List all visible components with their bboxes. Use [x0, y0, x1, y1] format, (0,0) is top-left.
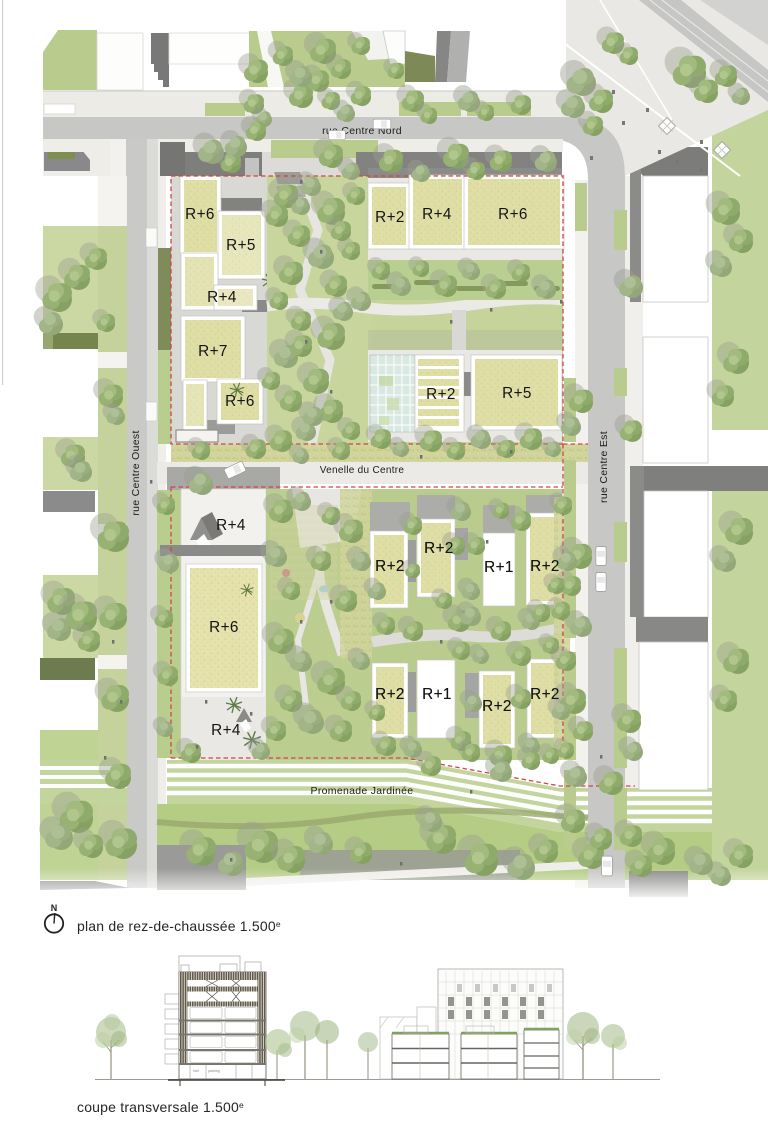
- svg-text:R+5: R+5: [502, 385, 532, 402]
- svg-text:R+6: R+6: [185, 206, 215, 223]
- svg-text:R+2: R+2: [482, 698, 512, 715]
- svg-text:R+5: R+5: [226, 237, 256, 254]
- svg-text:R+4: R+4: [216, 517, 246, 534]
- svg-text:plan de rez-de-chaussée 1.500: plan de rez-de-chaussée 1.500e: [77, 918, 281, 934]
- svg-text:R+2: R+2: [375, 686, 405, 703]
- svg-text:R+2: R+2: [530, 686, 560, 703]
- svg-text:R+1: R+1: [422, 686, 452, 703]
- svg-text:R+2: R+2: [530, 558, 560, 575]
- svg-text:R+6: R+6: [498, 206, 528, 223]
- svg-text:R+6: R+6: [209, 619, 239, 636]
- svg-text:R+7: R+7: [198, 343, 228, 360]
- svg-text:Promenade Jardinée: Promenade Jardinée: [311, 785, 414, 797]
- svg-text:R+2: R+2: [375, 558, 405, 575]
- svg-text:R+1: R+1: [484, 559, 514, 576]
- svg-text:R+2: R+2: [424, 540, 454, 557]
- svg-text:R+4: R+4: [207, 289, 237, 306]
- svg-text:rue Centre Ouest: rue Centre Ouest: [130, 430, 142, 515]
- svg-text:R+6: R+6: [225, 393, 255, 410]
- svg-text:R+4: R+4: [422, 206, 452, 223]
- svg-text:R+2: R+2: [375, 209, 405, 226]
- svg-text:Venelle du Centre: Venelle du Centre: [320, 465, 405, 476]
- svg-text:rue Centre Est: rue Centre Est: [598, 431, 610, 503]
- svg-text:R+4: R+4: [211, 722, 241, 739]
- svg-text:coupe transversale 1.500e: coupe transversale 1.500e: [77, 1099, 244, 1115]
- svg-text:R+2: R+2: [426, 386, 456, 403]
- svg-text:N: N: [51, 903, 58, 913]
- svg-text:parking: parking: [208, 1069, 220, 1073]
- svg-text:hall: hall: [193, 1069, 199, 1073]
